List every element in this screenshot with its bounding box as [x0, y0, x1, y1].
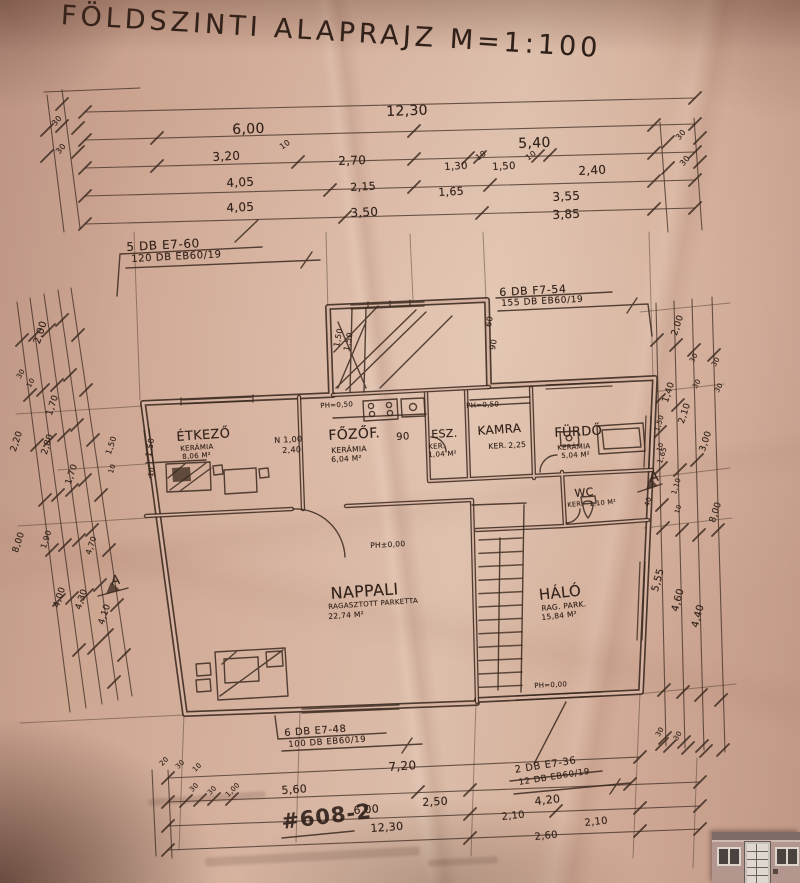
dim-label: 6,00: [353, 802, 380, 817]
dim-label: 2,20: [9, 430, 25, 453]
room-sub: 6,04 M²: [331, 453, 362, 464]
dim-label: 30: [710, 356, 722, 368]
room-sub: 1,04 M²: [428, 449, 457, 458]
dim-label: 7,20: [388, 758, 417, 774]
inset-vent: [773, 869, 778, 874]
page-title: FÖLDSZINTI ALAPRAJZ M=1:100: [60, 0, 602, 64]
dim-label: 4,05: [226, 175, 255, 190]
dim-label: 1,90: [39, 529, 53, 550]
level-mark: PH±0,00: [370, 539, 406, 550]
dim-label: 3,55: [552, 189, 581, 204]
dim-label: 10: [191, 761, 203, 773]
dim-label: 12,30: [386, 103, 428, 120]
dim-label: 2,00: [670, 314, 686, 337]
room-sub: 5,04 M²: [561, 450, 590, 459]
room-label: ESZ.: [431, 427, 458, 441]
inset-door: [747, 844, 768, 883]
dim-label: 2,00: [32, 320, 50, 346]
dim-label: 10: [107, 463, 118, 475]
room-sub: 1,10 M²: [589, 498, 616, 508]
dim-label: 6,00: [232, 121, 265, 138]
dim-label: 30: [15, 368, 27, 380]
dim-label: 1,65: [438, 185, 464, 199]
dim-label: 5,60: [281, 782, 308, 797]
dim-label: 30: [713, 382, 725, 394]
dim-label: 2,10: [501, 810, 525, 823]
dim-label: 30: [50, 114, 64, 128]
facade-photo-inset: [712, 832, 800, 883]
room-label: KAMRA: [477, 421, 522, 438]
dim-label: 10: [673, 504, 683, 515]
dim-label: 3,20: [212, 149, 241, 164]
dim-label: 5,40: [518, 135, 551, 152]
dim-label: 5,55: [650, 567, 667, 593]
dim-label: 30: [672, 730, 684, 742]
dim-label: 30: [174, 758, 186, 770]
section-marker: A: [110, 573, 121, 589]
dim-label: 2,10: [584, 816, 608, 829]
dim-label: 30: [188, 781, 200, 793]
dim-label: 90: [396, 431, 410, 443]
dim-label: 1,50: [342, 331, 355, 351]
dim-label: 2,40: [578, 163, 607, 178]
dim-label: 2,80: [40, 433, 56, 456]
inset-window-right: [775, 847, 799, 866]
level-mark: PH=0,50: [320, 400, 353, 410]
dim-label: 4,05: [226, 200, 255, 215]
dim-label: 1,10: [670, 477, 683, 495]
room-sub: KER.: [567, 500, 584, 509]
dim-label: 2,70: [338, 153, 366, 168]
dim-label: 40: [643, 496, 654, 508]
dim-label: 10: [25, 377, 37, 389]
room-label: FŐZŐF.: [328, 425, 381, 444]
dim-label: 3,50: [350, 205, 379, 220]
dim-label: 1,50: [144, 437, 156, 457]
room-label: FÜRDŐ: [554, 423, 603, 440]
dim-label: 60: [484, 315, 495, 327]
dim-label: 12,30: [370, 820, 404, 835]
room-sub: 8,06 M²: [182, 451, 211, 461]
dim-label: 2,60: [534, 830, 558, 843]
dim-label: 4,20: [534, 792, 561, 808]
dim-label: N 1,00: [274, 435, 303, 445]
dim-label: 30: [691, 378, 703, 390]
dim-label: 1,70: [45, 394, 61, 417]
dim-label: 1,50: [104, 435, 118, 456]
room-label: WC: [574, 485, 594, 500]
floor-plan-photo: FÖLDSZINTI ALAPRAJZ M=1:100 #608-2 12,30…: [0, 0, 800, 883]
dim-label: 30: [674, 128, 688, 142]
room-label: ÉTKEZŐ: [176, 426, 231, 445]
dim-label: 1,30: [444, 161, 468, 173]
room-sub: 2,25: [508, 440, 526, 450]
dim-label: 90: [488, 338, 499, 350]
section-marker: A: [648, 469, 660, 486]
level-mark: PH=0,00: [534, 680, 567, 690]
dim-label: 1,70: [64, 463, 80, 486]
dim-label: 4,70: [84, 535, 98, 556]
inset-window-left: [717, 847, 741, 866]
dim-label: 30: [654, 726, 666, 738]
dim-label: 30: [688, 352, 700, 364]
dim-label: 8,00: [708, 501, 724, 524]
dim-label: 2,50: [422, 795, 448, 809]
dim-label: 3,00: [698, 430, 714, 453]
dim-label: 8,00: [11, 531, 27, 554]
room-sub: 22,74 M²: [328, 610, 364, 621]
dim-label: 20: [158, 755, 170, 767]
dim-label: 10: [278, 138, 292, 152]
dim-label: 4,00: [52, 586, 68, 609]
dim-label: 4,30: [74, 588, 90, 611]
labels-layer: FÖLDSZINTI ALAPRAJZ M=1:100 #608-2 12,30…: [0, 0, 800, 883]
dim-label: 3,85: [552, 207, 581, 222]
dim-label: 2,40: [282, 445, 301, 455]
dim-label: 2,10: [677, 402, 693, 425]
dim-label: 1,50: [653, 414, 666, 432]
dim-label: 4,10: [97, 603, 113, 626]
room-sub: KER.: [488, 441, 507, 451]
level-mark: PH=0,50: [466, 400, 499, 410]
dim-label: 10: [474, 149, 488, 163]
dim-label: 30: [678, 154, 692, 168]
dim-label: 1,50: [492, 161, 516, 173]
dim-label: 2,15: [350, 180, 376, 194]
dim-label: 1,40: [661, 381, 677, 404]
dim-label: 4,60: [670, 587, 687, 613]
dim-label: 4,40: [690, 603, 707, 629]
dim-label: 30: [54, 142, 68, 156]
dim-label: 10: [147, 467, 157, 478]
